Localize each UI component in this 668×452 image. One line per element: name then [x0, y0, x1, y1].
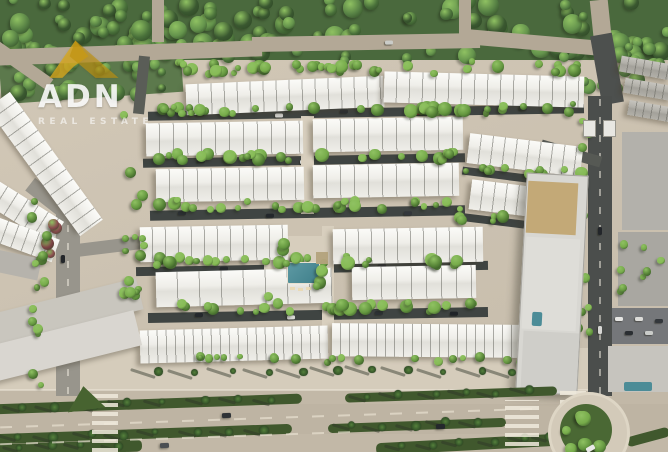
green-west-column-tree	[125, 167, 136, 178]
green-strip-3-tree	[153, 198, 166, 211]
green-strip-3-tree	[244, 198, 251, 205]
roundabout-trees-tree	[562, 426, 571, 435]
townhouse-row-3b	[313, 163, 460, 199]
green-strip-6-tree	[221, 354, 227, 360]
roundabout-trees-tree	[576, 411, 591, 426]
green-west-column-tree	[124, 276, 134, 286]
green-strip-1-tree	[458, 104, 471, 117]
green-strip-1-tree	[219, 107, 229, 117]
green-strip-0-tree	[551, 68, 559, 76]
green-strip-east-2-tree	[490, 218, 496, 224]
right-perimeter-road-car	[598, 227, 602, 235]
forest-top-tree	[624, 0, 639, 10]
median-1a-palms-palm	[234, 395, 242, 403]
green-west-column-tree	[135, 250, 146, 261]
green-strip-2-tree	[416, 150, 428, 162]
green-strip-0-tree	[535, 60, 543, 68]
green-strip-3-tree	[207, 206, 214, 213]
green-left-road	[26, 196, 56, 392]
green-strip-2	[140, 148, 470, 166]
median-1b-palms-palm	[525, 385, 534, 394]
forest-top-tree	[259, 0, 273, 9]
masterplan-scene	[0, 0, 668, 452]
green-strip-2-tree	[166, 152, 173, 159]
green-west-column	[118, 100, 148, 320]
green-strip-1-tree	[160, 105, 169, 114]
median-1b-palms-palm	[492, 390, 499, 397]
promenade-palms-palm	[440, 369, 446, 375]
promenade-palms-palm	[299, 368, 308, 377]
green-strip-1-tree	[542, 103, 553, 114]
green-left-road-tree	[27, 212, 37, 222]
forest-top-tree	[98, 27, 109, 38]
green-strip-1-tree	[484, 106, 491, 113]
green-strip-0-tree	[335, 60, 348, 73]
median-1a-palms-palm	[268, 397, 275, 404]
green-right-road-tree	[586, 328, 593, 335]
boulevard-car-2	[436, 424, 445, 429]
green-left-road-tree	[34, 284, 41, 291]
right-perimeter-road-car	[598, 326, 602, 334]
green-strip-5-tree	[428, 301, 441, 314]
green-strip-4-tree	[223, 256, 230, 263]
green-strip-1-tree	[286, 103, 293, 110]
green-strip-0-tree	[307, 61, 318, 72]
green-strip-0-tree	[376, 67, 382, 73]
green-strip-1-tree	[357, 105, 365, 113]
green-strip-1-tree	[252, 105, 260, 113]
green-strip-2-tree	[315, 148, 329, 162]
roundabout-trees-tree	[565, 443, 577, 452]
east-parking-car	[625, 331, 633, 335]
forest-top-tree	[258, 7, 270, 19]
green-strip-5-tree	[253, 309, 259, 315]
green-strip-east-1-tree	[561, 166, 568, 173]
green-strip-1-tree	[499, 102, 507, 110]
median-1a-palms-palm	[122, 398, 131, 407]
forest-top-tree	[343, 0, 363, 18]
green-strip-0	[170, 58, 590, 78]
green-strip-0-tree	[430, 70, 438, 78]
green-strip-0-tree	[403, 61, 412, 70]
green-left-road-tree	[42, 231, 52, 241]
green-strip-1-tree	[229, 110, 236, 117]
promenade-palms-palm	[266, 369, 273, 376]
courtyard-trees-tree	[313, 282, 321, 290]
apartment-deck-pool	[532, 312, 543, 327]
green-strip-1-tree	[520, 103, 527, 110]
green-strip-5-tree	[465, 298, 476, 309]
promenade-palms-palm	[508, 369, 515, 376]
green-strip-3-tree	[442, 197, 453, 208]
promenade-palms-palm-shadow	[344, 366, 370, 376]
green-left-road-tree	[32, 260, 39, 267]
green-strip-3-tree	[174, 197, 181, 204]
forest-top-tree	[169, 21, 187, 39]
gatehouse-left	[583, 120, 596, 137]
green-strip-2-tree	[369, 149, 381, 161]
green-strip-2-tree	[196, 151, 207, 162]
forest-left-tree	[108, 84, 125, 101]
green-strip-3-tree	[272, 202, 280, 210]
roundabout-trees-tree	[593, 440, 607, 452]
green-strip-0-tree	[210, 65, 222, 77]
green-left-road-tree	[38, 251, 48, 261]
aerial-masterplan-render: ADN REAL ESTATE	[0, 0, 668, 452]
green-strip-4-tree	[362, 261, 369, 268]
median-2b-palms-palm-shadow	[395, 424, 413, 431]
green-strip-0-tree	[292, 60, 301, 69]
green-west-column-tree	[132, 234, 139, 241]
green-strip-0-tree	[327, 64, 336, 73]
green-strip-5-tree	[405, 299, 412, 306]
median-1b-palms-palm	[463, 388, 470, 395]
apartment-roof-mid	[522, 237, 581, 332]
median-1b-palms-palm	[364, 393, 370, 399]
east-courtyard-shrubs-tree	[643, 267, 651, 275]
green-strip-1	[145, 100, 585, 118]
forest-top-tree	[579, 12, 589, 22]
east-courtyard-shrubs-tree	[657, 257, 665, 265]
townhouse-row-5b	[352, 265, 477, 300]
green-strip-4-tree	[451, 255, 463, 267]
median-1b-palms-palm	[433, 390, 440, 397]
roundabout-trees	[561, 405, 611, 452]
green-strip-3-tree	[235, 205, 242, 212]
green-strip-east-1-tree	[463, 168, 469, 174]
green-strip-0-tree	[492, 60, 505, 73]
green-strip-1-tree	[438, 102, 452, 116]
green-strip-1-tree	[178, 110, 185, 117]
green-strip-3-tree	[216, 203, 226, 213]
forest-top-tree	[364, 0, 379, 10]
green-strip-5-tree	[237, 307, 245, 315]
courtyard-trees-tree	[316, 265, 328, 277]
forest-top-tree	[39, 0, 50, 9]
east-pool	[624, 382, 652, 391]
green-strip-6-tree	[460, 355, 466, 361]
forest-top-tree	[560, 0, 571, 10]
median-1a-palms-palm	[50, 402, 60, 412]
courtyard-trees-tree	[283, 260, 290, 267]
green-strip-4-tree	[203, 255, 213, 265]
promenade-palms	[140, 362, 540, 380]
forest-left-tree	[58, 83, 74, 99]
green-strip-4-tree	[241, 255, 249, 263]
green-left-road-tree	[33, 324, 43, 334]
green-strip-5-tree	[442, 301, 451, 310]
forest-top-tree	[115, 10, 127, 22]
courtyard-trees-tree	[278, 238, 290, 250]
east-courtyard-shrubs-tree	[617, 266, 625, 274]
green-strip-6-tree	[475, 352, 485, 362]
courtyard-trees-tree	[264, 292, 273, 301]
forest-top-tree	[9, 0, 18, 4]
east-parking-car	[615, 317, 623, 321]
green-left-road-tree	[28, 369, 38, 379]
green-strip-4-tree	[163, 256, 175, 268]
east-courtyard-shrubs-tree	[619, 284, 627, 292]
east-courtyard-shrubs-tree	[641, 244, 647, 250]
right-perimeter-road-dash	[599, 98, 601, 394]
forest-top-tree	[131, 20, 152, 41]
apartment-roof-deck	[526, 181, 579, 236]
east-courtyard-shrubs	[616, 232, 668, 306]
forest-top-tree	[440, 8, 452, 20]
green-strip-4-tree	[341, 256, 355, 270]
forest-right-tree	[643, 43, 655, 55]
green-strip-3-tree	[377, 204, 387, 214]
green-strip-0-tree	[568, 64, 581, 77]
green-strip-2-tree	[358, 154, 367, 163]
forest-left-tree	[158, 84, 166, 92]
green-strip-3-tree	[433, 202, 439, 208]
green-left-road-tree	[38, 382, 44, 388]
green-strip-0-tree	[463, 65, 472, 74]
median-2a-palms-palm	[194, 428, 203, 437]
east-parking-car	[645, 331, 653, 335]
forest-top-tree	[325, 4, 336, 15]
forest-top-tree	[90, 16, 102, 28]
median-1b-palms-palm	[394, 390, 403, 399]
green-strip-5-tree	[359, 302, 372, 315]
promenade-palms-palm	[191, 369, 198, 376]
forest-left-tree	[158, 68, 166, 76]
green-strip-east-1-tree	[501, 164, 509, 172]
median-3b-palms-palm	[491, 438, 499, 446]
green-strip-east-2-tree	[457, 215, 467, 225]
promenade-palms-palm	[230, 368, 236, 374]
green-west-column-tree	[131, 199, 142, 210]
forest-top-tree	[478, 0, 499, 16]
green-strip-5-tree	[204, 302, 213, 311]
green-strip-2-tree	[445, 149, 454, 158]
median-2b-palms-palm-shadow	[332, 423, 350, 430]
east-parking	[612, 308, 668, 344]
apartment-roof-low	[521, 331, 580, 392]
forest-top-tree	[234, 11, 252, 29]
green-strip-5-tree	[177, 299, 187, 309]
gatehouse-right	[603, 120, 616, 137]
green-strip-1-tree	[308, 102, 320, 114]
promenade-palms-palm	[404, 366, 412, 374]
green-left-road-tree	[40, 277, 49, 286]
median-2b-palms-palm	[378, 423, 386, 431]
forest-top-tree	[58, 18, 71, 31]
median-1a-palms-palm	[18, 403, 27, 412]
green-strip-2-tree	[153, 153, 165, 165]
green-strip-5-tree	[286, 307, 294, 315]
green-west-column-tree	[122, 248, 129, 255]
crosswalk-east	[505, 400, 539, 446]
median-3b-palms-palm	[429, 441, 437, 449]
boulevard-car-3	[160, 443, 169, 448]
top-branch-b	[459, 0, 471, 40]
green-left-road-tree	[29, 305, 37, 313]
green-strip-2-tree	[177, 155, 187, 165]
promenade-palms-palm-shadow	[380, 366, 406, 376]
forest-top-tree	[58, 0, 69, 11]
green-strip-3-tree	[189, 204, 197, 212]
green-strip-2-tree	[398, 153, 406, 161]
green-strip-3-tree	[335, 202, 342, 209]
top-branch-a	[152, 0, 164, 42]
forest-top-tree	[73, 32, 85, 44]
green-left-road-tree	[31, 198, 38, 205]
promenade-palms-palm	[333, 366, 342, 375]
promenade-palms-palm-shadow	[310, 366, 336, 376]
green-strip-5-tree	[259, 303, 270, 314]
green-strip-east-2-tree	[497, 210, 509, 222]
forest-top-tree	[214, 22, 233, 41]
green-right-road-tree	[578, 143, 587, 152]
east-parking-car	[635, 317, 643, 321]
green-strip-2-tree	[224, 151, 236, 163]
median-1a-palms-palm	[201, 395, 210, 404]
green-west-column-tree	[122, 235, 129, 242]
forest-top-tree	[403, 13, 412, 22]
promenade-palms-palm-shadow	[275, 368, 301, 378]
green-strip-5-tree	[377, 300, 388, 311]
green-strip-3-tree	[349, 200, 361, 212]
median-3b-palms-palm	[397, 442, 405, 450]
green-strip-3	[148, 196, 468, 214]
median-2b-palms-palm	[474, 418, 483, 427]
green-strip-1-tree	[426, 106, 438, 118]
median-3a-palms-palm	[16, 445, 22, 451]
median-2a-palms-palm	[14, 433, 21, 440]
green-strip-3-tree	[278, 206, 285, 213]
green-west-column-tree	[140, 242, 148, 250]
green-strip-3-tree	[421, 203, 427, 209]
green-strip-0-tree	[353, 60, 363, 70]
green-strip-1-tree	[371, 104, 383, 116]
promenade-palms-palm	[368, 366, 376, 374]
median-3b-palms-palm	[455, 437, 463, 445]
promenade-palms-palm	[154, 367, 163, 376]
median-2a-palms-palm	[152, 429, 159, 436]
median-2b-palms-palm	[347, 421, 354, 428]
promenade-palms-palm-shadow	[167, 369, 193, 379]
green-strip-1-tree	[404, 104, 418, 118]
green-strip-3-tree	[341, 198, 348, 205]
green-strip-0-tree	[235, 65, 241, 71]
green-strip-3-tree	[411, 198, 419, 206]
median-2b-palms-palm	[410, 421, 420, 431]
courtyard-trees	[256, 232, 342, 302]
green-strip-4-tree	[153, 261, 161, 269]
forest-top-tree	[103, 4, 116, 17]
promenade-palms-palm-shadow	[206, 367, 232, 377]
forest-left-tree	[95, 66, 105, 76]
forest-right-tree	[625, 43, 633, 51]
green-strip-0-tree	[469, 58, 475, 64]
green-strip-6-tree	[338, 354, 345, 361]
green-strip-3-tree	[302, 201, 314, 213]
boulevard-car-1	[222, 413, 231, 418]
green-strip-6-tree	[198, 355, 203, 360]
green-west-column-tree	[120, 111, 128, 119]
east-neighbor-slab	[622, 132, 668, 230]
promenade-palms-palm-shadow	[456, 367, 482, 377]
green-strip-2-tree	[244, 153, 251, 160]
promenade-palms-palm-shadow	[416, 368, 442, 378]
green-strip-6-tree	[237, 354, 243, 360]
median-1a-palms-palm	[159, 398, 166, 405]
green-strip-6-tree	[214, 354, 220, 360]
green-strip-east-1-tree	[484, 167, 492, 175]
courtyard-trees-tree	[291, 254, 301, 264]
promenade-palms-palm-shadow	[243, 368, 269, 378]
green-strip-0-tree	[180, 61, 186, 67]
forest-top-tree	[179, 0, 199, 16]
east-courtyard-shrubs-tree	[620, 240, 629, 249]
townhouse-row-2b	[313, 117, 464, 153]
promenade-palms-palm-shadow	[485, 368, 511, 378]
east-parking-car	[655, 319, 663, 323]
green-strip-4-tree	[193, 258, 199, 264]
top-road-mid-car	[385, 40, 393, 44]
